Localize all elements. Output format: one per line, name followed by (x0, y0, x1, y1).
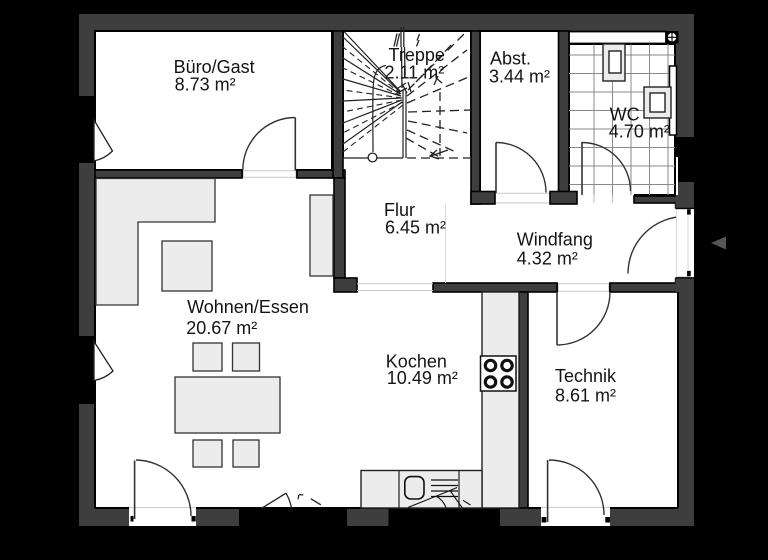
svg-text:6.45 m²: 6.45 m² (385, 218, 446, 238)
svg-text:10.49 m²: 10.49 m² (387, 368, 458, 388)
svg-text:Wohnen/Essen: Wohnen/Essen (187, 297, 309, 317)
svg-text:Technik: Technik (555, 366, 617, 386)
svg-text:8.61 m²: 8.61 m² (555, 385, 616, 405)
svg-text:Windfang: Windfang (517, 230, 593, 250)
svg-text:20.67 m²: 20.67 m² (186, 318, 257, 338)
svg-text:8.73 m²: 8.73 m² (175, 74, 236, 94)
svg-text:2.11 m²: 2.11 m² (385, 63, 445, 83)
svg-text:3.44 m²: 3.44 m² (489, 67, 550, 87)
svg-text:4.32 m²: 4.32 m² (517, 249, 578, 269)
svg-text:Abst.: Abst. (490, 48, 531, 68)
svg-text:4.70 m²: 4.70 m² (609, 122, 670, 142)
